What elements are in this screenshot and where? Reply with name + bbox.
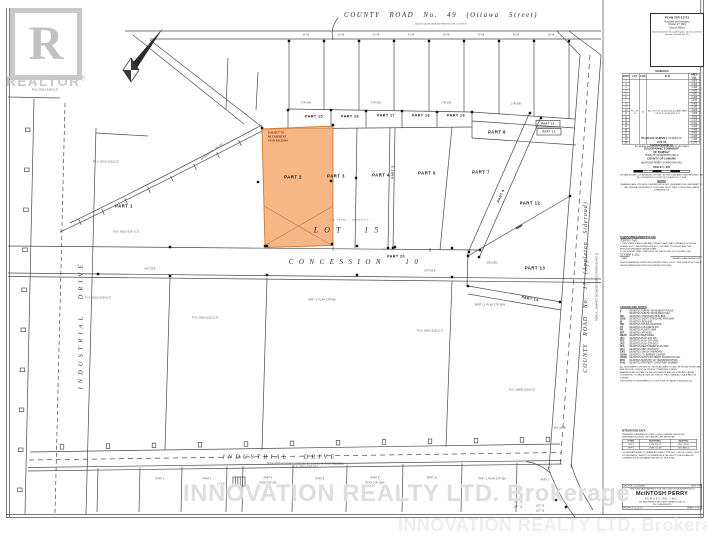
survey-monument-mark — [451, 276, 453, 278]
annotation-text: SUBJECT TO — [268, 132, 284, 135]
survey-monument-mark — [97, 273, 99, 275]
parcel-label-part-1: PART 1 — [115, 204, 133, 209]
survey-monument-mark — [24, 168, 29, 172]
survey-monument-mark — [19, 408, 24, 412]
plan-line — [97, 468, 98, 512]
annotation-text: 30.48 — [408, 34, 415, 37]
surveyor-signature-squiggle — [620, 236, 643, 241]
annotation-text: PART 4 — [264, 477, 273, 480]
parcel-label-part-6: PART 6 — [418, 171, 436, 176]
parcel-label-part-13: PART 13 — [525, 266, 546, 271]
integration-note: COORDINATES CANNOT, IN THEMSELVES, BE US… — [622, 454, 700, 459]
brokerage-watermark: INNOVATION REALTY LTD. Brokerage — [183, 480, 630, 508]
survey-monument-mark — [332, 124, 334, 126]
survey-monument-mark — [387, 247, 389, 249]
road-label-county-road-49: COUNTY ROAD No. 49 (Ottawa Street) — [344, 11, 538, 19]
parcel-label-part-17: PART 17 — [377, 113, 395, 118]
certificate-note: PLAN SUBMISSION FORM FILED UNDER O.REG. … — [620, 261, 702, 266]
survey-monument-mark — [479, 249, 481, 251]
survey-monument-mark — [25, 128, 30, 132]
survey-monument-mark — [529, 112, 531, 114]
integration-cell: 369 488.02 — [670, 446, 697, 449]
annotation-text: 30.48 — [338, 34, 345, 37]
integration-line-1: OBSERVED REFERENCE POINTS (ORPs) DERIVED… — [622, 433, 700, 438]
survey-monument-mark — [244, 442, 248, 447]
survey-monument-mark — [287, 109, 289, 111]
survey-monument-mark — [365, 110, 367, 112]
integration-block: INTEGRATION DATA OBSERVED REFERENCE POIN… — [622, 430, 700, 459]
annotation-text: 30.48 — [373, 34, 380, 37]
survey-monument-mark — [266, 274, 268, 276]
survey-monument-mark — [356, 274, 358, 276]
survey-monument-mark — [198, 442, 202, 447]
annotation-text: P.I.N. 05110-0153 (LT) — [192, 317, 218, 320]
annotation-text: SIB (306) — [486, 262, 497, 265]
scale-bar — [634, 170, 690, 173]
title-of-part-of: OF PART OF — [668, 137, 682, 140]
firm-title-box: CAD FILE: 21-117-REG DWG: 27R THIS PLAN … — [622, 484, 702, 513]
plan-canvas: COUNTY ROAD No. 49 (Ottawa Street) ROAD … — [0, 0, 707, 530]
parcel-label-part-19: PART 19 — [447, 113, 465, 118]
road-sublabel-county-road-17: ROAD ALLOWANCE BETWEEN CONCESSIONS 10 AN… — [596, 253, 599, 321]
road-label-county-road-17: COUNTY ROAD No. 17 (Appleton Sideroad) — [583, 201, 589, 372]
firm-foot-right: SHEET 1 OF 1 — [687, 506, 701, 509]
survey-monument-mark — [358, 40, 360, 42]
annotation-text: LOT 16 — [536, 510, 545, 513]
realtor-caption-text: REALTOR — [6, 74, 81, 89]
certificate-signer-caption: ONTARIO LAND SURVEYOR — [670, 257, 702, 260]
survey-monument-mark — [467, 285, 469, 287]
road-label-industrial-drive-south: INDUSTRIAL DRIVE — [223, 454, 338, 461]
annotation-text: N47°55'E — [425, 270, 436, 273]
annotation-text: N47°52'E — [145, 268, 156, 271]
survey-monument-mark — [540, 117, 542, 119]
parcel-label-part-3: PART 3 — [327, 174, 345, 179]
legend-footnote: THIS SURVEY IS INTEGRATED TO UTM ZONE 18… — [620, 379, 702, 382]
survey-plan-listing-image: { "branding": { "logo_letter": "R", "log… — [0, 0, 707, 530]
lot-15-label: LOT 15 — [314, 226, 385, 235]
integration-cell: 4 998 212.48 — [640, 446, 670, 449]
annotation-text: PART 3, PLAN 27R-306 — [308, 299, 336, 302]
survey-monument-mark — [467, 255, 469, 257]
parcel-label-part-8: PART 8 — [488, 130, 506, 135]
road-sublabel-county-road-49: ROAD ALLOWANCE BETWEEN LOTS 15 AND 16 — [415, 22, 467, 25]
annotation-text: PART 6 — [371, 477, 380, 480]
parcel-label-part-20: PART 20 — [387, 254, 405, 259]
survey-monument-mark — [559, 301, 561, 303]
schedule-cell: 10 — [640, 79, 647, 144]
schedule-cell: PT. LOT 15 — [630, 79, 640, 144]
survey-monument-mark — [261, 127, 263, 129]
annotation-text: 27R-306 — [301, 102, 311, 105]
survey-monument-mark — [355, 177, 357, 179]
survey-monument-mark — [471, 111, 473, 113]
annotation-text: P.I.N. 05110-0113 (LT) — [93, 161, 119, 164]
survey-monument-mark — [330, 109, 332, 111]
realtor-logo-letter: R — [29, 20, 64, 68]
title-block: PLAN OF SURVEY OF PART OF LOT 15 CONCESS… — [620, 137, 703, 191]
annotation-text: P.I.N. 05110-0160 (LT) — [32, 89, 58, 92]
annotation-text: 27R-306 — [371, 102, 381, 105]
survey-monument-mark — [428, 40, 430, 42]
survey-monument-mark — [463, 40, 465, 42]
parcel-label-part-16: PART 16 — [341, 114, 359, 119]
survey-monument-mark — [533, 40, 535, 42]
scale-text: SCALE 1 : 800 — [620, 166, 703, 169]
survey-monument-mark — [24, 208, 29, 212]
annotation-text: 30.48 — [548, 34, 555, 37]
survey-monument-mark — [436, 111, 438, 113]
parcel-label-part-5: PART 5 — [392, 165, 395, 178]
annotation-text: 27R-306 — [511, 103, 521, 106]
registered-mark: ® — [81, 76, 88, 83]
plan-line — [139, 468, 140, 512]
schedule-table: PARTLOTCONP.I.N.AREA (ha) 1PT. LOT 1510A… — [622, 73, 700, 145]
annotation-text: AS IN RS122648 — [268, 140, 288, 143]
survey-monument-mark — [152, 443, 156, 448]
survey-monument-mark — [330, 180, 332, 182]
survey-monument-mark — [266, 245, 268, 247]
survey-monument-mark — [393, 40, 395, 42]
survey-monument-mark — [474, 438, 478, 443]
integration-row: ORP 24 998 212.48369 488.02 — [622, 446, 697, 449]
surveyors-certificate: SURVEYOR'S CERTIFICATE I CERTIFY THAT: 1… — [620, 236, 702, 266]
parcel-label-part-4: PART 4 — [372, 173, 390, 178]
legend-block: LEGEND AND NOTES ■DENOTES SURVEY MONUMEN… — [620, 306, 702, 382]
realtor-logo: R — [10, 8, 82, 80]
annotation-text: PART 10 — [427, 477, 437, 480]
survey-monument-mark — [18, 488, 23, 492]
survey-monument-mark — [336, 440, 340, 445]
surveying-firm-line: McINTOSH PERRY SURVEYING INC. — [620, 162, 703, 165]
survey-monument-mark — [60, 445, 64, 450]
title-county: COUNTY OF LANARK — [620, 158, 703, 161]
notes-body: BEARINGS ARE UTM GRID, DERIVED FROM GPS … — [620, 183, 703, 191]
plan-line — [181, 467, 182, 512]
survey-monument-mark — [257, 181, 259, 183]
parcel-label-part-2: PART 2 — [284, 175, 302, 180]
registrar-representative-text: Representative for the Land Registrar fo… — [652, 30, 702, 35]
survey-monument-mark — [546, 437, 550, 442]
integration-cell: ORP 2 — [622, 446, 639, 449]
survey-monument-mark — [569, 195, 571, 197]
survey-monument-mark — [451, 247, 453, 249]
survey-monument-mark — [169, 246, 171, 248]
annotation-text: 27R-306 — [441, 102, 451, 105]
survey-monument-mark — [18, 448, 23, 452]
certificate-clause-1: 1. THIS SURVEY AND PLAN ARE CORRECT AND … — [620, 242, 702, 250]
annotation-text: 30.48 — [478, 34, 485, 37]
survey-monument-mark — [568, 40, 570, 42]
title-plan-of-survey: PLAN OF SURVEY — [641, 137, 667, 140]
survey-monument-mark — [288, 40, 290, 42]
annotation-text: AN EASEMENT — [268, 136, 287, 139]
registrar-signature: Joanne Milner — [652, 27, 702, 30]
parcel-label-part-18: PART 18 — [412, 113, 430, 118]
survey-monument-mark — [169, 275, 171, 277]
deposit-stamp-box: PLAN 27R-11751 Received and Deposited Oc… — [650, 13, 704, 67]
parcel-label-part-10: PART 10 — [541, 122, 554, 125]
survey-monument-mark — [468, 251, 470, 253]
legend-item: P.I.N.DENOTES PROPERTY IDENTIFIER NUMBER — [620, 362, 702, 365]
annotation-text: PART 12, PLAN 27R-1606 — [475, 304, 505, 307]
survey-monument-mark — [478, 256, 480, 258]
annotation-text: P.I.N. 05096-0318 (LT) — [509, 389, 535, 392]
legend-footnote: ALL MONUMENTS SHOWN ON THIS PLAN WERE FO… — [620, 365, 702, 370]
survey-monument-mark — [382, 440, 386, 445]
plan-number: PLAN 27R-11751 — [652, 16, 702, 20]
survey-monument-mark — [290, 441, 294, 446]
annotation-text: P.I.N. 05110-0152 (LT) — [417, 330, 443, 333]
survey-monument-mark — [520, 438, 524, 443]
brokerage-watermark-cropped: INNOVATION REALTY LTD. Brokerage — [398, 515, 707, 536]
survey-monument-mark — [23, 248, 28, 252]
annotation-text: SIB (1606) — [554, 427, 566, 430]
annotation-text: 30.48 — [303, 34, 310, 37]
certificate-date-caption: DATE — [620, 257, 629, 260]
survey-monument-mark — [106, 444, 110, 449]
concession-10-label: CONCESSION 10 — [289, 258, 424, 266]
parcel-label-part-11: PART 11 — [542, 130, 555, 133]
annotation-text: P.I.N. 05110-0157 (LT) — [113, 231, 139, 234]
integration-table: POINTNORTHINGEASTINGORP 14 998 476.11369… — [622, 439, 697, 450]
road-sublabel-industrial-drive-2: P.I.N. 05110-0297 (LT) — [293, 466, 318, 469]
survey-monument-mark — [356, 245, 358, 247]
survey-monument-mark — [428, 439, 432, 444]
survey-monument-mark — [331, 243, 333, 245]
certificate-clause-2: 2. THE SURVEY WAS COMPLETED ON THE 8th D… — [620, 250, 702, 253]
metric-note: DISTANCES AND COORDINATES SHOWN ON THIS … — [620, 173, 703, 178]
realtor-logo-caption: REALTOR® — [6, 74, 87, 89]
survey-monument-mark — [20, 368, 25, 372]
survey-monument-mark — [22, 288, 27, 292]
survey-monument-mark — [21, 328, 26, 332]
survey-monument-mark — [392, 247, 394, 249]
road-label-industrial-drive-west: INDUSTRIAL DRIVE — [78, 261, 85, 390]
schedule-cell: ALL OF P.I.N. 05110-0114 (LT) AND PART O… — [646, 79, 689, 144]
annotation-text: PART 2 — [156, 478, 165, 481]
annotation-text: 30.48 — [443, 34, 450, 37]
lot-15-sublabel: — J.W. STONE — KERNELLY — — [326, 219, 372, 222]
parcel-label-part-7: PART 7 — [472, 170, 490, 175]
survey-monument-mark — [323, 40, 325, 42]
legend-footnote: BEARINGS AND DISTANCES SHOWN HEREON ARE … — [620, 371, 702, 379]
parcel-label-part-12: PART 12 — [520, 201, 541, 206]
annotation-text: 30.48 — [513, 34, 520, 37]
survey-monument-mark — [498, 40, 500, 42]
survey-monument-mark — [401, 110, 403, 112]
annotation-text: P.I.N. 05110-0154 (LT) — [85, 297, 111, 300]
firm-name: McINTOSH PERRY — [623, 491, 702, 498]
parcel-label-part-15: PART 15 — [305, 114, 323, 119]
